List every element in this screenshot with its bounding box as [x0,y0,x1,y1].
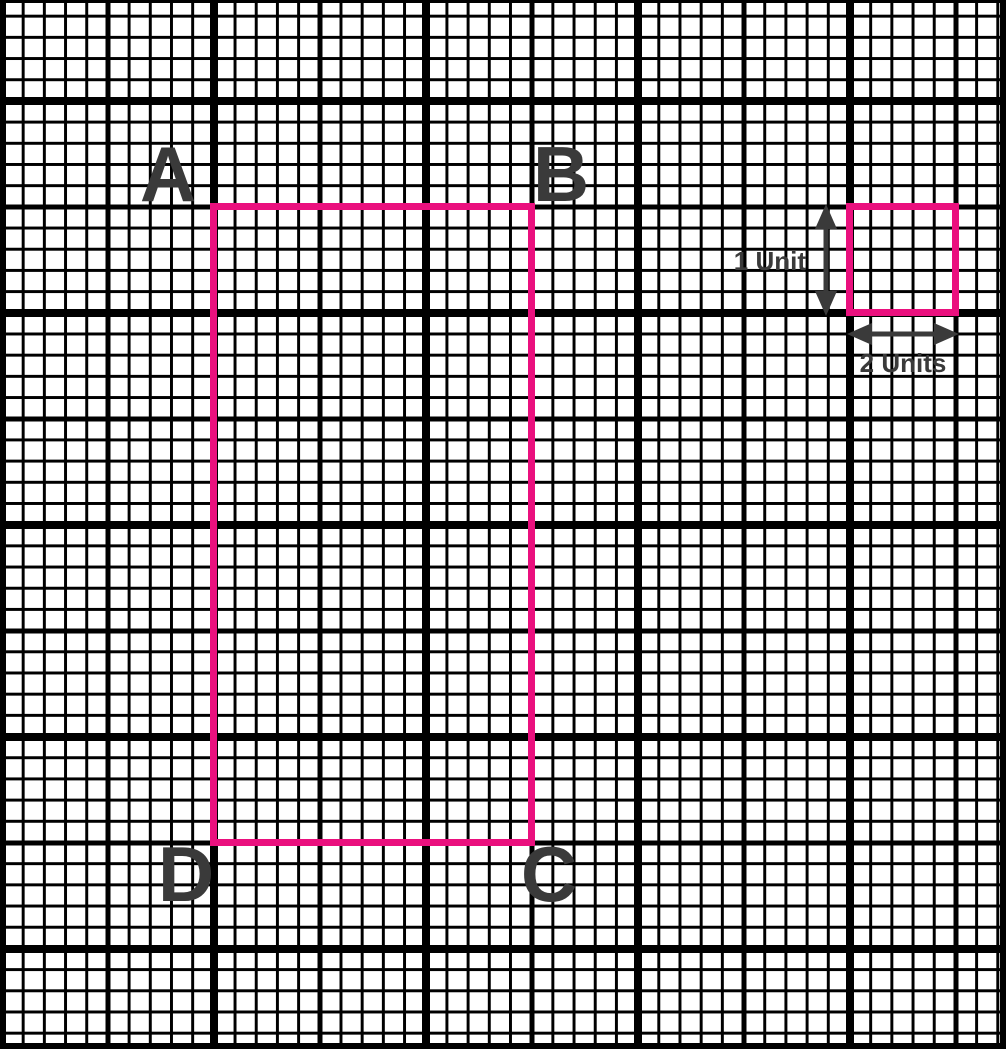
rectangle-abcd [210,203,535,846]
corner-label-a: A [136,134,200,214]
corner-label-c: C [517,834,581,914]
horizontal-double-arrow-icon [847,319,959,349]
unit-reference-square [846,203,959,316]
sheet-edge-bottom [0,1043,1006,1049]
sheet-edge-top [0,0,1006,3]
vertical-double-arrow-icon [811,204,841,316]
sheet-edge-right [1000,0,1006,1049]
corner-label-b: B [529,134,593,214]
corner-label-d: D [154,834,218,914]
horizontal-scale-label: 2 Units [841,349,965,377]
vertical-scale-label: 1 Unit [706,247,806,275]
grid-paper: A B C D 1 Unit 2 Units [0,0,1006,1049]
